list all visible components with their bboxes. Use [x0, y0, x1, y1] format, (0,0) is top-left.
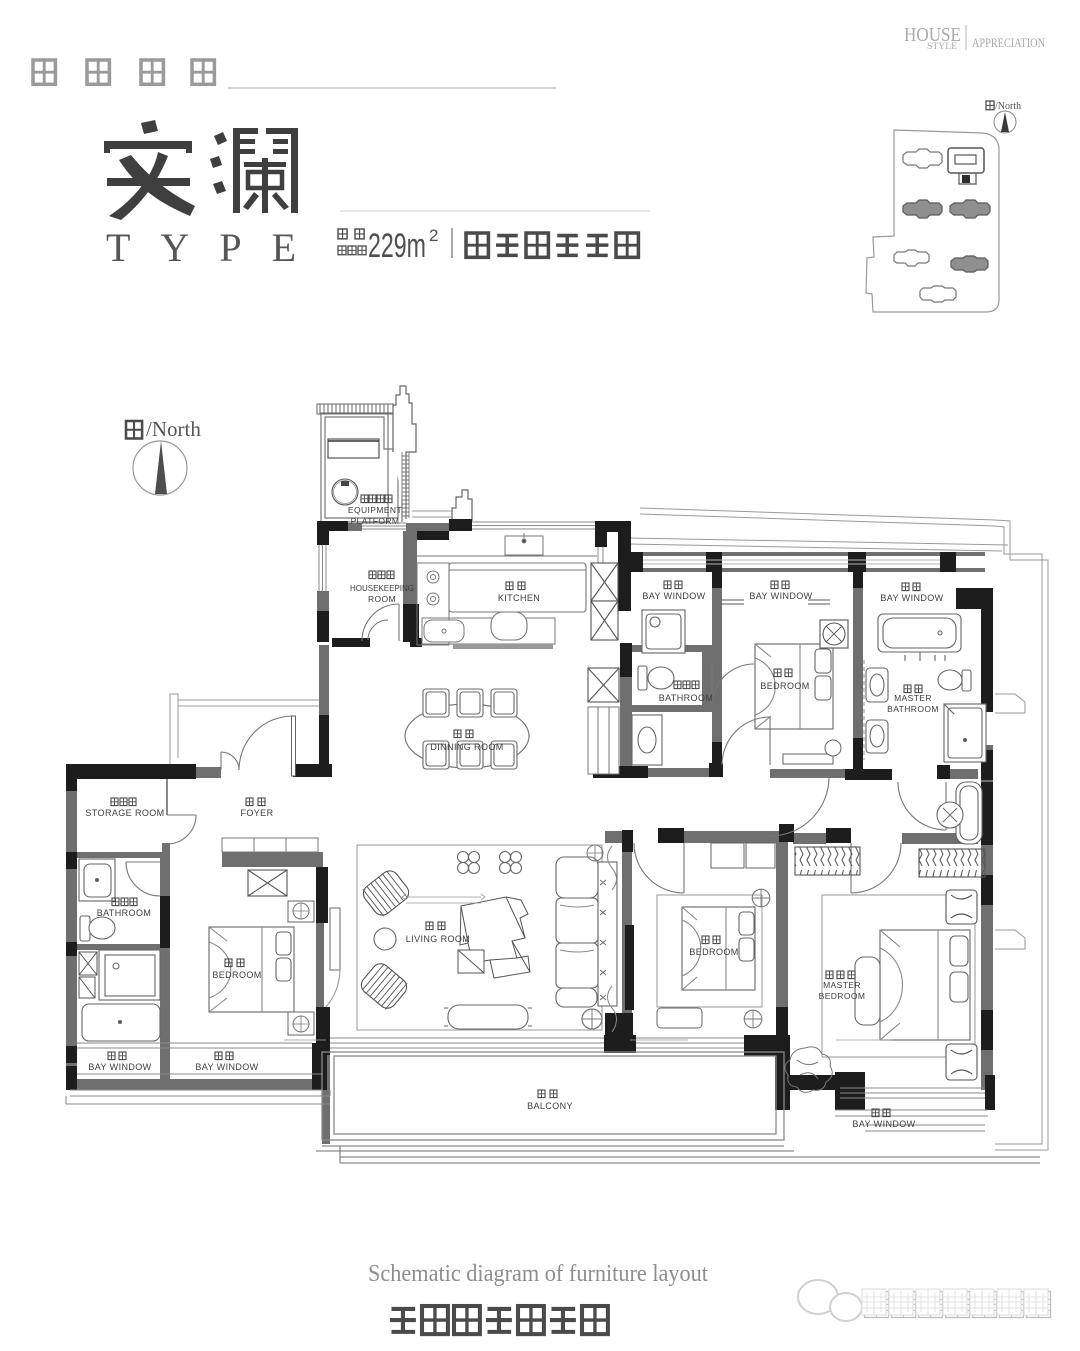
svg-text:BAY WINDOW: BAY WINDOW: [749, 591, 812, 601]
svg-text:BALCONY: BALCONY: [527, 1101, 573, 1111]
svg-text:FOYER: FOYER: [240, 808, 273, 818]
svg-text:BATHROOM: BATHROOM: [887, 704, 939, 714]
svg-text:STYLE: STYLE: [927, 41, 958, 51]
svg-text:APPRECIATION: APPRECIATION: [972, 36, 1045, 50]
svg-text:229m: 229m: [368, 227, 426, 265]
svg-text:STORAGE ROOM: STORAGE ROOM: [85, 808, 164, 818]
svg-text:2: 2: [429, 226, 438, 245]
svg-text:/North: /North: [995, 101, 1021, 112]
svg-text:BAY WINDOW: BAY WINDOW: [88, 1062, 151, 1072]
svg-text:BEDROOM: BEDROOM: [760, 681, 809, 691]
svg-text:BAY WINDOW: BAY WINDOW: [880, 593, 943, 603]
svg-text:HOUSEKEEPING: HOUSEKEEPING: [350, 584, 414, 593]
svg-text:MASTER: MASTER: [823, 980, 861, 990]
svg-text:BEDROOM: BEDROOM: [212, 970, 261, 980]
svg-text:BATHROOM: BATHROOM: [97, 908, 152, 918]
svg-text:ROOM: ROOM: [368, 594, 396, 604]
svg-text:BEDROOM: BEDROOM: [819, 991, 866, 1001]
svg-text:Schematic diagram of furniture: Schematic diagram of furniture layout: [368, 1261, 708, 1287]
svg-text:BAY WINDOW: BAY WINDOW: [642, 591, 705, 601]
svg-text:EQUIPMENT: EQUIPMENT: [348, 505, 402, 515]
svg-text:BEDROOM: BEDROOM: [689, 947, 738, 957]
svg-text:PLATFORM: PLATFORM: [351, 516, 400, 526]
svg-text:BATHROOM: BATHROOM: [659, 693, 714, 703]
svg-text:DINNING ROOM: DINNING ROOM: [430, 742, 503, 752]
svg-text:KITCHEN: KITCHEN: [498, 593, 540, 603]
svg-text:/North: /North: [146, 417, 201, 441]
svg-text:TYPE: TYPE: [106, 225, 326, 270]
svg-text:BAY WINDOW: BAY WINDOW: [852, 1119, 915, 1129]
svg-text:LIVING ROOM: LIVING ROOM: [406, 934, 470, 944]
svg-text:BAY WINDOW: BAY WINDOW: [195, 1062, 258, 1072]
svg-text:MASTER: MASTER: [894, 693, 932, 703]
